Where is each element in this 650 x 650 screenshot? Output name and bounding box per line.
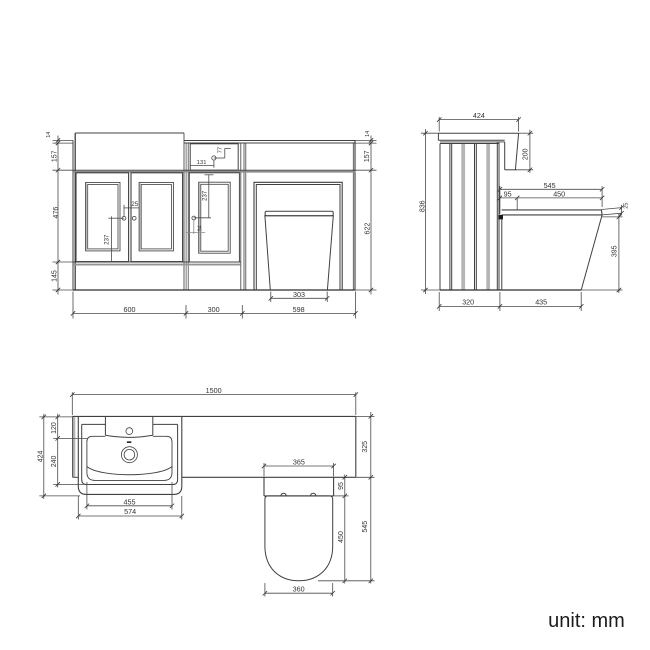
svg-text:240: 240 bbox=[51, 455, 58, 467]
svg-text:365: 365 bbox=[293, 458, 305, 467]
svg-text:94: 94 bbox=[198, 225, 204, 231]
svg-text:300: 300 bbox=[208, 305, 220, 314]
svg-text:200: 200 bbox=[523, 148, 530, 160]
svg-text:25: 25 bbox=[623, 202, 629, 208]
svg-text:145: 145 bbox=[52, 270, 59, 282]
svg-text:424: 424 bbox=[473, 111, 485, 120]
svg-text:360: 360 bbox=[293, 585, 305, 594]
svg-text:unit: mm: unit: mm bbox=[548, 610, 625, 632]
svg-text:320: 320 bbox=[462, 298, 474, 307]
svg-text:131: 131 bbox=[197, 160, 207, 166]
svg-text:455: 455 bbox=[124, 497, 136, 506]
svg-text:424: 424 bbox=[38, 450, 45, 462]
svg-text:95: 95 bbox=[504, 190, 512, 199]
svg-text:836: 836 bbox=[420, 200, 427, 212]
svg-text:395: 395 bbox=[611, 245, 618, 257]
svg-text:303: 303 bbox=[293, 290, 305, 299]
svg-text:157: 157 bbox=[52, 150, 59, 162]
svg-text:435: 435 bbox=[535, 298, 547, 307]
svg-text:237: 237 bbox=[104, 234, 110, 245]
svg-text:598: 598 bbox=[293, 305, 305, 314]
svg-text:545: 545 bbox=[362, 521, 369, 533]
svg-text:1500: 1500 bbox=[206, 386, 222, 395]
svg-text:237: 237 bbox=[202, 190, 208, 201]
svg-text:25: 25 bbox=[131, 201, 139, 208]
svg-text:95: 95 bbox=[338, 482, 345, 490]
svg-text:600: 600 bbox=[124, 305, 136, 314]
svg-text:77: 77 bbox=[217, 147, 223, 153]
svg-text:14: 14 bbox=[365, 131, 371, 137]
svg-text:14: 14 bbox=[46, 132, 52, 138]
svg-text:450: 450 bbox=[338, 531, 345, 543]
svg-text:574: 574 bbox=[124, 507, 136, 516]
svg-text:450: 450 bbox=[553, 190, 565, 199]
svg-text:476: 476 bbox=[53, 207, 60, 219]
svg-text:157: 157 bbox=[364, 150, 371, 162]
svg-text:120: 120 bbox=[51, 422, 58, 434]
svg-text:325: 325 bbox=[362, 441, 369, 453]
svg-text:545: 545 bbox=[544, 181, 556, 190]
svg-text:622: 622 bbox=[364, 223, 371, 235]
